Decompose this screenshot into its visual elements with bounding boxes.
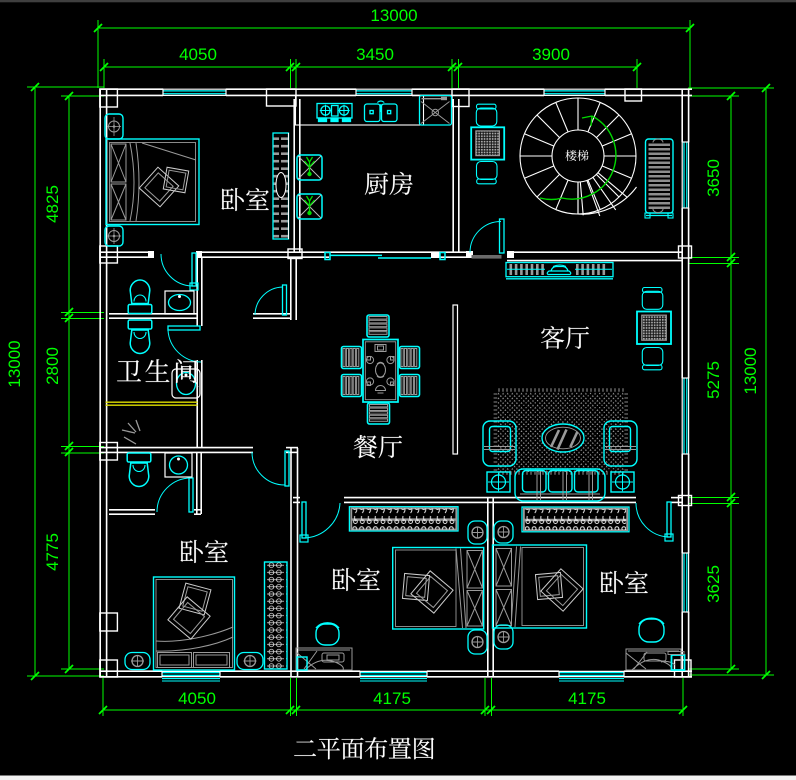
svg-text:3450: 3450	[356, 45, 394, 64]
svg-text:3650: 3650	[704, 159, 723, 197]
svg-text:4050: 4050	[178, 689, 216, 708]
svg-text:3625: 3625	[704, 565, 723, 603]
svg-text:4175: 4175	[568, 689, 606, 708]
svg-text:4050: 4050	[179, 45, 217, 64]
svg-text:13000: 13000	[741, 347, 760, 394]
svg-text:13000: 13000	[370, 6, 417, 25]
svg-text:4175: 4175	[373, 689, 411, 708]
svg-text:13000: 13000	[5, 340, 24, 387]
svg-text:5275: 5275	[704, 361, 723, 399]
svg-text:4775: 4775	[43, 533, 62, 571]
svg-text:4825: 4825	[43, 185, 62, 223]
svg-text:2800: 2800	[43, 347, 62, 385]
svg-text:3900: 3900	[532, 45, 570, 64]
